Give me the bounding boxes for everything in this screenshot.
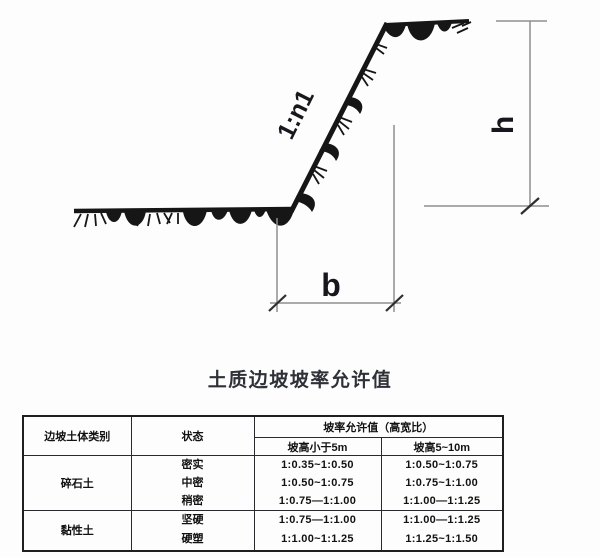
state-line: 稍密: [132, 492, 254, 510]
dimension-tick-marks: [269, 198, 539, 311]
cell-ratio-lt5: 1:0.35~1:0.50 1:0.50~1:0.75 1:0.75—1:1.0…: [254, 456, 381, 511]
slope-cross-section-diagram: 1:n1 h b: [0, 0, 600, 345]
cell-category: 黏性土: [23, 511, 131, 551]
ratio-value: 1:0.75—1:1.00: [255, 492, 381, 510]
ground-lines: [74, 21, 469, 212]
height-label: h: [487, 116, 520, 134]
slope-ratio-table: 边坡土体类别 状态 坡率允许值（高宽比） 坡高小于5m 坡高5~10m 碎石土 …: [22, 415, 504, 552]
slope-ratio-label: 1:n1: [272, 85, 320, 144]
width-label: b: [321, 267, 341, 303]
cell-ratio-5-10: 1:0.50~1:0.75 1:0.75~1:1.00 1:1.00—1:1.2…: [381, 456, 503, 511]
table-row-gravel-soil: 碎石土 密实 中密 稍密 1:0.35~1:0.50 1:0.50~1:0.75…: [23, 456, 503, 511]
state-line: 坚硬: [132, 511, 254, 530]
ground-hatch-blobs: [106, 209, 294, 226]
state-line: 密实: [132, 456, 254, 474]
cell-ratio-5-10: 1:1.00—1:1.25 1:1.25~1:1.50: [381, 511, 503, 551]
ratio-value: 1:0.50~1:0.75: [255, 474, 381, 492]
header-ratio-group: 坡率允许值（高宽比）: [254, 416, 503, 438]
ratio-value: 1:0.75~1:1.00: [382, 474, 503, 492]
ratio-value: 1:0.75—1:1.00: [255, 511, 381, 530]
ratio-value: 1:1.00~1:1.25: [255, 530, 381, 549]
cell-category: 碎石土: [23, 456, 131, 511]
ratio-value: 1:1.00—1:1.25: [382, 492, 503, 510]
header-state: 状态: [131, 416, 254, 456]
header-height-lt-5m: 坡高小于5m: [254, 438, 381, 456]
cell-ratio-lt5: 1:0.75—1:1.00 1:1.00~1:1.25: [254, 511, 381, 551]
state-line: 中密: [132, 474, 254, 492]
header-height-5-10m: 坡高5~10m: [381, 438, 503, 456]
ratio-value: 1:1.25~1:1.50: [382, 530, 503, 549]
state-line: 硬塑: [132, 530, 254, 549]
ratio-value: 1:0.50~1:0.75: [382, 456, 503, 474]
table-row-clay-soil: 黏性土 坚硬 硬塑 1:0.75—1:1.00 1:1.00~1:1.25 1:…: [23, 511, 503, 551]
ratio-value: 1:1.00—1:1.25: [382, 511, 503, 530]
ratio-value: 1:0.35~1:0.50: [255, 456, 381, 474]
table-title: 土质边坡坡率允许值: [0, 365, 600, 392]
header-soil-category: 边坡土体类别: [23, 416, 131, 456]
cell-states: 坚硬 硬塑: [131, 511, 254, 551]
cell-states: 密实 中密 稍密: [131, 456, 254, 511]
document-page: 1:n1 h b 土质边坡坡率允许值 边坡土体类别 状态 坡率允许值（高宽比） …: [0, 0, 600, 557]
